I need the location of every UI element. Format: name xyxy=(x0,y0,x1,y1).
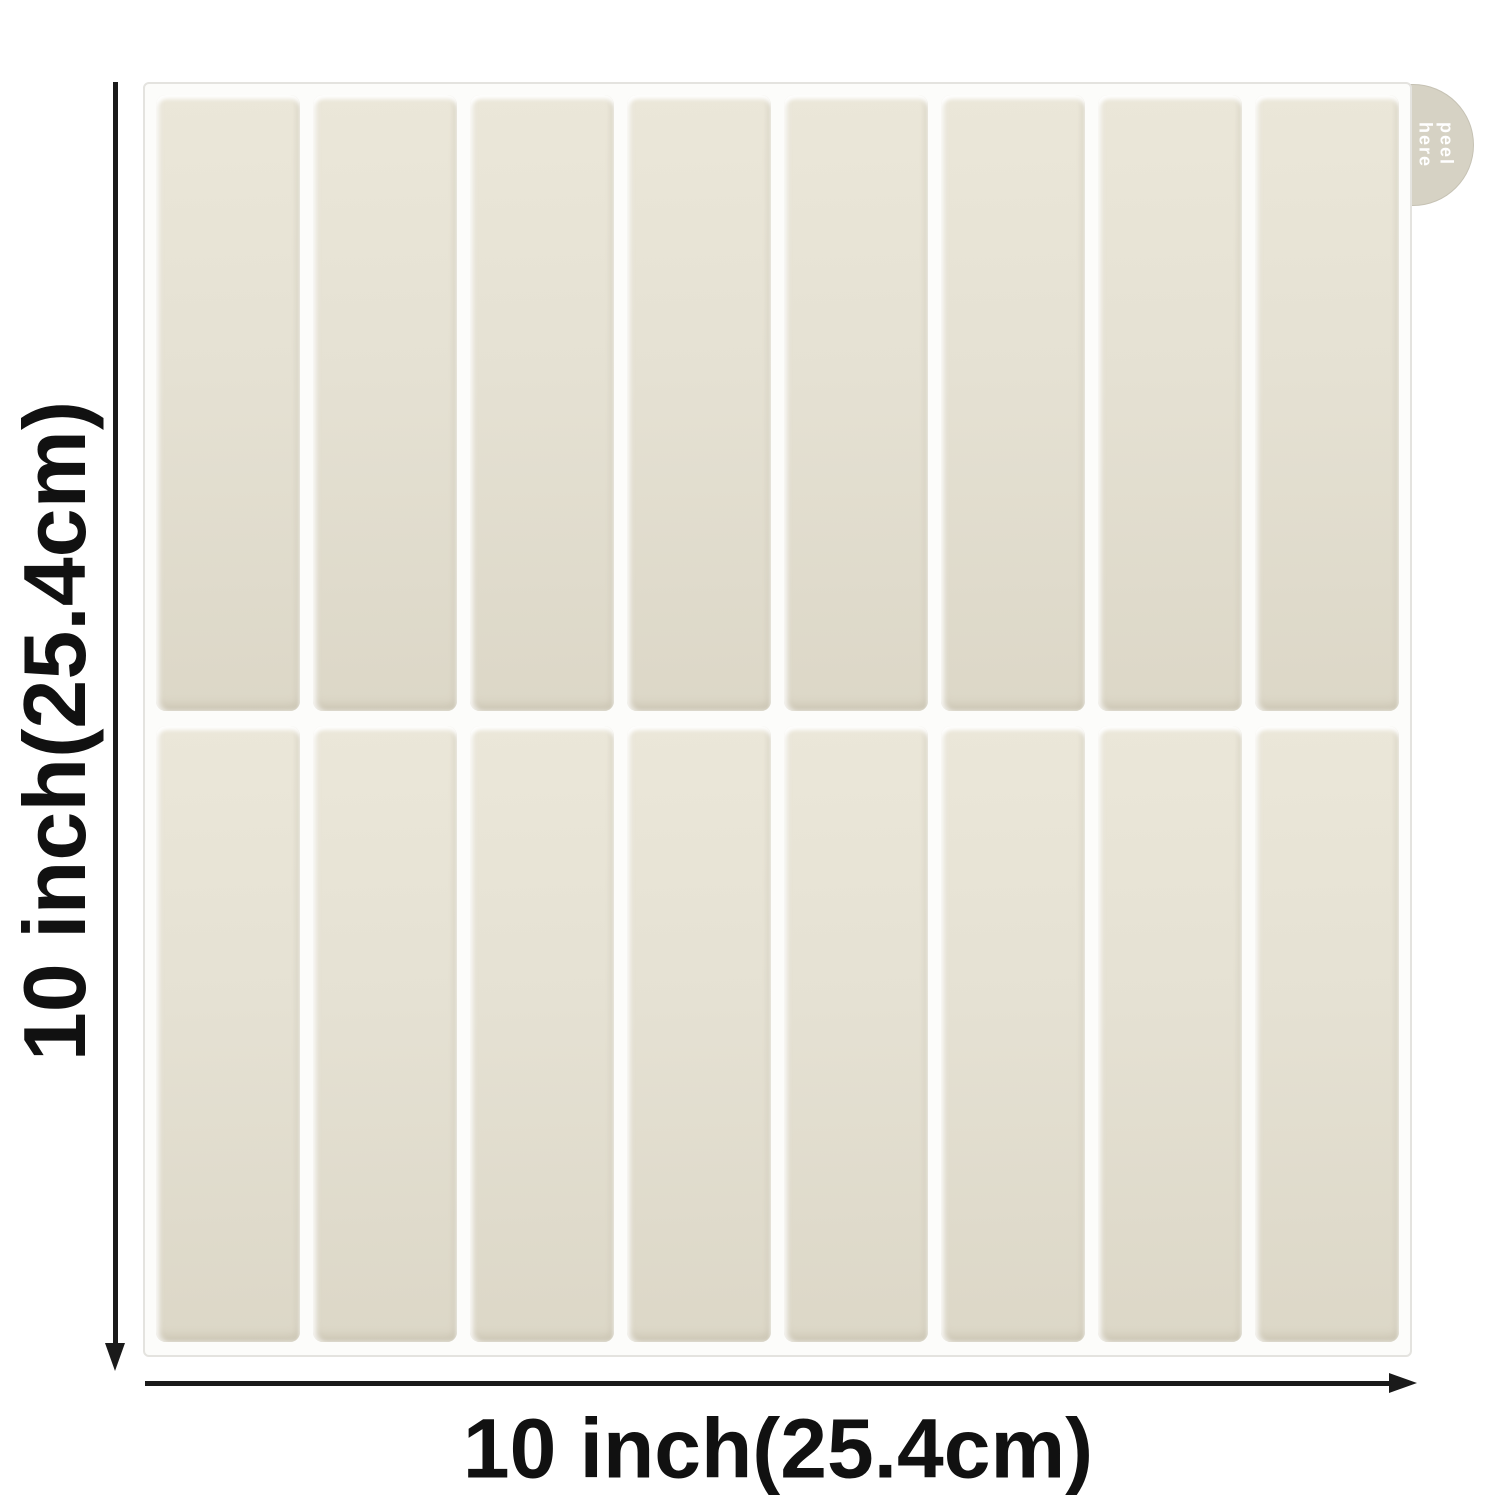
tile xyxy=(1255,726,1399,1342)
tile xyxy=(941,95,1085,711)
height-dimension-label: 10 inch(25.4cm) xyxy=(4,401,106,1061)
arrow-right-icon xyxy=(1389,1373,1417,1393)
arrow-down-icon xyxy=(105,1343,125,1371)
tile xyxy=(470,95,614,711)
tile-sheet xyxy=(143,82,1412,1357)
width-dimension-line xyxy=(145,1381,1391,1386)
tile xyxy=(1098,95,1242,711)
tile-grid xyxy=(156,95,1399,1342)
tile xyxy=(1255,95,1399,711)
tile xyxy=(156,726,300,1342)
tile xyxy=(941,726,1085,1342)
tile xyxy=(784,95,928,711)
tile xyxy=(1098,726,1242,1342)
tile xyxy=(627,726,771,1342)
tile xyxy=(627,95,771,711)
peel-here-label-line2: here xyxy=(1415,122,1436,168)
tile xyxy=(313,95,457,711)
tile xyxy=(313,726,457,1342)
peel-here-label: peel here xyxy=(1415,122,1456,168)
peel-here-label-line1: peel xyxy=(1436,122,1457,168)
product-dimension-diagram: peel here 10 inch(25.4cm) 10 inch(25.4cm… xyxy=(0,0,1500,1500)
tile xyxy=(156,95,300,711)
tile xyxy=(784,726,928,1342)
tile xyxy=(470,726,614,1342)
width-dimension-label: 10 inch(25.4cm) xyxy=(463,1401,1093,1498)
peel-here-tab: peel here xyxy=(1408,84,1474,206)
height-dimension-line xyxy=(113,82,118,1344)
